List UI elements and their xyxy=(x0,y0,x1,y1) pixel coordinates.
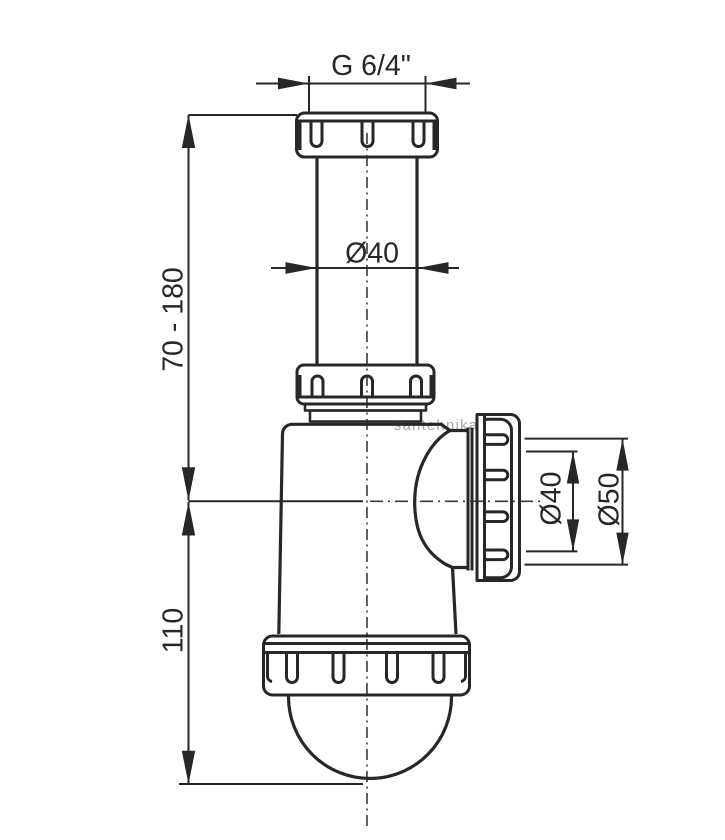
svg-text:70 - 180: 70 - 180 xyxy=(158,267,190,372)
svg-text:Ø50: Ø50 xyxy=(594,473,626,527)
svg-text:Ø40: Ø40 xyxy=(536,472,568,526)
svg-text:Ø40: Ø40 xyxy=(345,238,399,270)
svg-text:santehnika: santehnika xyxy=(394,417,479,434)
svg-text:G 6/4": G 6/4" xyxy=(331,50,411,82)
svg-text:110: 110 xyxy=(158,608,190,653)
